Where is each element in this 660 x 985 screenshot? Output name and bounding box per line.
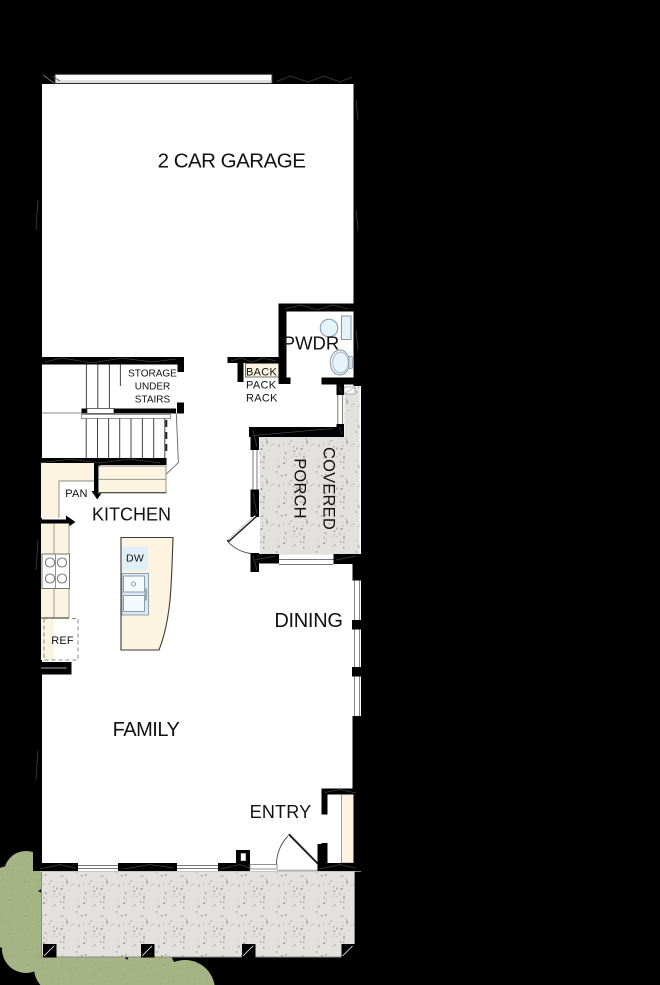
- svg-text:UNDER: UNDER: [135, 382, 171, 393]
- svg-text:KITCHEN: KITCHEN: [92, 505, 171, 525]
- svg-text:REF: REF: [51, 635, 74, 647]
- svg-text:DINING: DINING: [274, 610, 342, 632]
- svg-text:FAMILY: FAMILY: [113, 719, 180, 741]
- svg-text:PWDR: PWDR: [283, 333, 340, 354]
- svg-text:STAIRS: STAIRS: [135, 395, 171, 406]
- svg-text:BACK: BACK: [246, 367, 278, 379]
- svg-text:RACK: RACK: [246, 393, 278, 405]
- svg-text:STORAGE: STORAGE: [128, 369, 177, 380]
- svg-text:2 CAR GARAGE: 2 CAR GARAGE: [158, 150, 306, 173]
- svg-text:PACK: PACK: [246, 380, 277, 392]
- svg-text:PAN: PAN: [65, 488, 87, 500]
- svg-text:ENTRY: ENTRY: [250, 802, 312, 822]
- svg-text:DW: DW: [126, 553, 144, 565]
